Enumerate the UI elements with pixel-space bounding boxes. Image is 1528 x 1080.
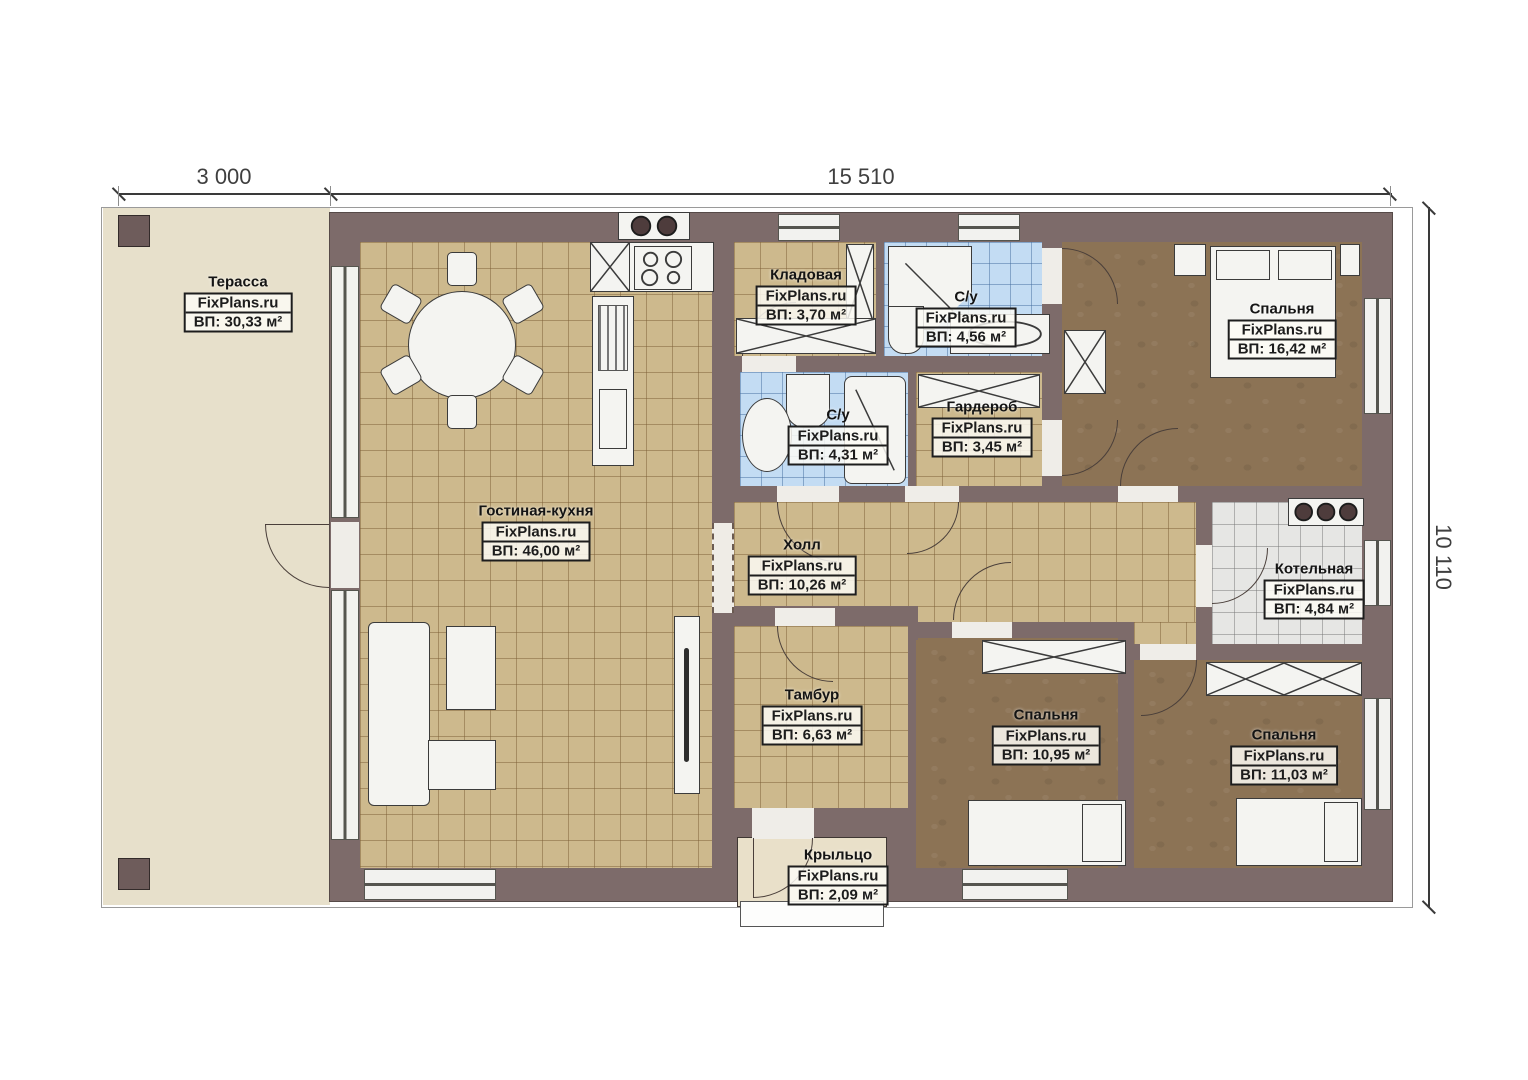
room-name: Спальня [1228, 301, 1337, 318]
fridge-icon [592, 296, 634, 466]
fridge-door [599, 389, 627, 449]
room-label-hall: Холл FixPlans.ruВП: 10,26 м² [748, 537, 857, 596]
room-area: ВП: 6,63 м² [764, 727, 861, 744]
room-label-storage: Кладовая FixPlans.ruВП: 3,70 м² [756, 267, 857, 326]
door-bathroom-lower-opening [777, 486, 839, 502]
pillow [1324, 802, 1358, 862]
room-name: С/у [916, 289, 1017, 306]
brand-watermark: FixPlans.ru [484, 524, 589, 543]
brand-watermark: FixPlans.ru [790, 868, 887, 887]
door-entrance-opening [752, 808, 814, 839]
stove-icon [634, 246, 692, 290]
brand-watermark: FixPlans.ru [186, 295, 291, 314]
room-area: ВП: 16,42 м² [1230, 341, 1335, 358]
window-bottom-living [364, 869, 496, 900]
room-area: ВП: 30,33 м² [186, 314, 291, 331]
room-label-bathroom-top: С/у FixPlans.ruВП: 4,56 м² [916, 289, 1017, 348]
window-top-bathroom [958, 214, 1020, 241]
dining-table-icon [408, 291, 516, 399]
sofa-seat-icon [428, 740, 496, 790]
terrace-column-icon [118, 215, 150, 247]
dimension-house-height: 10 110 [1430, 524, 1456, 590]
fridge-grill [598, 305, 628, 371]
dimension-extension [330, 186, 331, 206]
coffee-table-icon [446, 626, 496, 710]
door-bedroom-bottomright-opening [1140, 644, 1196, 660]
window-bottom-bedroom [962, 869, 1068, 900]
room-name: Терасса [184, 274, 293, 291]
brand-watermark: FixPlans.ru [1266, 582, 1363, 601]
floor-plan: Терасса FixPlans.ruВП: 30,33 м² Гостиная… [0, 0, 1528, 1080]
brand-watermark: FixPlans.ru [758, 288, 855, 307]
room-area: ВП: 4,31 м² [790, 447, 887, 464]
room-label-vestibule: Тамбур FixPlans.ruВП: 6,63 м² [762, 687, 863, 746]
room-label-terrace: Терасса FixPlans.ruВП: 30,33 м² [184, 274, 293, 333]
brand-watermark: FixPlans.ru [1232, 748, 1336, 767]
brand-watermark: FixPlans.ru [934, 420, 1031, 439]
dimension-extension [1390, 186, 1391, 206]
boiler-unit-icon [1288, 498, 1364, 526]
door-bedroom-middle-opening [952, 622, 1012, 638]
room-label-bathroom-lower: С/у FixPlans.ruВП: 4,31 м² [788, 407, 889, 466]
room-area: ВП: 4,56 м² [918, 329, 1015, 346]
room-name: Спальня [1230, 727, 1338, 744]
door-terrace-opening [331, 522, 359, 588]
brand-watermark: FixPlans.ru [790, 428, 887, 447]
pillow [1082, 804, 1122, 862]
room-label-boiler: Котельная FixPlans.ruВП: 4,84 м² [1264, 561, 1365, 620]
passage-living-hall [712, 523, 734, 613]
door-bedroom-topright-hall-opening [1118, 486, 1178, 502]
nightstand-icon [1340, 244, 1360, 276]
room-name: Котельная [1264, 561, 1365, 578]
room-name: Холл [748, 537, 857, 554]
room-name: Крыльцо [788, 847, 889, 864]
room-label-porch: Крыльцо FixPlans.ruВП: 2,09 м² [788, 847, 889, 906]
window-right-boiler [1364, 540, 1391, 606]
brand-watermark: FixPlans.ru [994, 728, 1099, 747]
room-label-wardrobe: Гардероб FixPlans.ruВП: 3,45 м² [932, 399, 1033, 458]
door-wardrobe-opening [905, 486, 959, 502]
room-name: Гардероб [932, 399, 1033, 416]
room-label-bedroom-topright: Спальня FixPlans.ruВП: 16,42 м² [1228, 301, 1337, 360]
brand-watermark: FixPlans.ru [764, 708, 861, 727]
door-corridor-upper-opening [1042, 248, 1062, 304]
brand-watermark: FixPlans.ru [1230, 322, 1335, 341]
dimension-terrace-width: 3 000 [196, 164, 251, 190]
dimension-extension [118, 186, 119, 206]
kitchen-cabinet-icon [590, 242, 630, 292]
room-name: Тамбур [762, 687, 863, 704]
pillow [1278, 250, 1332, 280]
terrace-column-icon [118, 858, 150, 890]
dimension-line-top [118, 193, 1392, 195]
brand-watermark: FixPlans.ru [918, 310, 1015, 329]
nightstand-icon [1174, 244, 1206, 276]
window-top-storage [778, 214, 840, 241]
dimension-house-width: 15 510 [827, 164, 894, 190]
wardrobe-cabinet-icon [982, 640, 1126, 674]
room-area: ВП: 11,03 м² [1232, 767, 1336, 784]
room-name: Гостиная-кухня [479, 503, 594, 520]
window-left-living-lower [331, 590, 359, 840]
room-area: ВП: 46,00 м² [484, 543, 589, 560]
room-hall [1134, 622, 1196, 644]
room-area: ВП: 3,45 м² [934, 439, 1031, 456]
wall [908, 606, 918, 640]
wardrobe-cabinet-icon [1064, 330, 1106, 394]
room-name: С/у [788, 407, 889, 424]
room-area: ВП: 10,26 м² [750, 577, 855, 594]
room-area: ВП: 10,95 м² [994, 747, 1099, 764]
chair-icon [447, 395, 477, 429]
room-label-living-kitchen: Гостиная-кухня FixPlans.ruВП: 46,00 м² [479, 503, 594, 562]
room-area: ВП: 3,70 м² [758, 307, 855, 324]
room-label-bedroom-bottomright: Спальня FixPlans.ruВП: 11,03 м² [1230, 727, 1338, 786]
wardrobe-cabinet-icon [1206, 662, 1362, 696]
door-vestibule-opening [775, 608, 835, 626]
brand-watermark: FixPlans.ru [750, 558, 855, 577]
tv-icon [684, 648, 689, 762]
door-storage-opening [742, 356, 796, 372]
pillow [1216, 250, 1270, 280]
window-right-bedroom-bottom [1364, 698, 1391, 810]
chair-icon [447, 252, 477, 286]
window-left-living-upper [331, 266, 359, 518]
room-area: ВП: 2,09 м² [790, 887, 887, 904]
window-right-bedroom-top [1364, 298, 1391, 414]
room-label-bedroom-middle: Спальня FixPlans.ruВП: 10,95 м² [992, 707, 1101, 766]
room-area: ВП: 4,84 м² [1266, 601, 1363, 618]
room-name: Спальня [992, 707, 1101, 724]
door-corridor-lower-opening [1042, 420, 1062, 476]
door-boiler-opening [1196, 545, 1212, 607]
sink-icon [742, 398, 792, 472]
sofa-icon [368, 622, 430, 806]
room-name: Кладовая [756, 267, 857, 284]
kitchen-vent-icon [618, 212, 690, 240]
